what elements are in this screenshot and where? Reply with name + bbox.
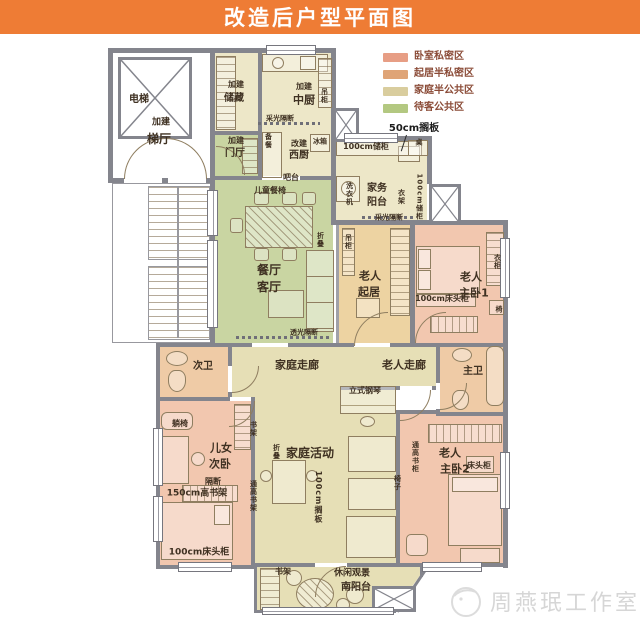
floor-plan-page: 改造后户型平面图 卧室私密区起居半私密区家庭半公共区待客公共区 bbox=[0, 0, 640, 630]
wall-segment bbox=[347, 563, 400, 567]
window-symbol bbox=[266, 45, 316, 55]
watermark-logo bbox=[446, 583, 486, 619]
legend-label: 家庭半公共区 bbox=[414, 86, 474, 96]
furniture-outline bbox=[262, 132, 282, 178]
furniture-outline bbox=[148, 266, 210, 340]
furniture-outline bbox=[272, 57, 284, 69]
furniture-outline bbox=[428, 424, 502, 443]
furniture-outline bbox=[260, 470, 272, 482]
wall-segment bbox=[288, 343, 354, 347]
toilet bbox=[168, 370, 186, 392]
legend-label: 卧室私密区 bbox=[414, 52, 464, 62]
furniture-outline bbox=[452, 477, 498, 492]
furniture-outline bbox=[408, 140, 428, 156]
legend-item: 起居半私密区 bbox=[383, 68, 474, 80]
furniture-outline bbox=[282, 192, 297, 205]
title-bar: 改造后户型平面图 bbox=[0, 0, 640, 34]
furniture-outline bbox=[418, 270, 431, 290]
furniture-outline bbox=[161, 436, 189, 484]
furniture-outline bbox=[489, 300, 504, 315]
duct-shaft bbox=[429, 184, 461, 224]
furniture-outline bbox=[254, 248, 269, 261]
furniture-outline bbox=[306, 470, 318, 482]
legend-label: 待客公共区 bbox=[414, 103, 464, 113]
wall-segment bbox=[210, 176, 262, 180]
legend-swatch bbox=[383, 104, 408, 113]
wall-segment bbox=[436, 412, 508, 416]
wall-segment bbox=[331, 220, 415, 225]
furniture-outline bbox=[460, 548, 500, 563]
upright-piano bbox=[340, 386, 396, 414]
window-symbol bbox=[500, 452, 510, 509]
window-symbol bbox=[153, 496, 163, 542]
wall-segment bbox=[396, 410, 400, 567]
window-symbol bbox=[178, 562, 232, 572]
wall-segment bbox=[251, 563, 315, 567]
furniture-outline bbox=[182, 485, 238, 502]
furniture-outline bbox=[452, 348, 472, 362]
fridge bbox=[310, 134, 330, 152]
furniture-outline bbox=[342, 228, 355, 276]
furniture-outline bbox=[260, 568, 280, 610]
wall-segment bbox=[300, 176, 333, 180]
furniture-outline bbox=[230, 218, 243, 233]
coffee-table bbox=[268, 290, 304, 318]
legend-label: 起居半私密区 bbox=[414, 69, 474, 79]
window-symbol bbox=[500, 238, 510, 298]
furniture-outline bbox=[191, 452, 205, 466]
furniture-outline bbox=[318, 58, 332, 108]
furniture-outline bbox=[348, 436, 396, 472]
partition-wall bbox=[336, 225, 339, 345]
watermark-text: 周燕珉工作室 bbox=[490, 585, 640, 617]
door-arc bbox=[166, 138, 207, 179]
window-symbol bbox=[207, 240, 218, 328]
sofa bbox=[306, 250, 334, 332]
activity-table bbox=[272, 460, 306, 504]
window-symbol bbox=[153, 428, 163, 486]
legend-item: 待客公共区 bbox=[383, 102, 474, 114]
child-dining-chair bbox=[302, 192, 316, 205]
legend-swatch bbox=[383, 70, 408, 79]
furniture-outline bbox=[166, 351, 188, 366]
wall-segment bbox=[108, 48, 113, 183]
furniture-outline bbox=[216, 56, 236, 130]
glass-partition bbox=[236, 336, 332, 339]
shape bbox=[459, 597, 462, 600]
page-title: 改造后户型平面图 bbox=[224, 2, 416, 32]
wall-segment bbox=[410, 220, 415, 345]
elevator-shaft bbox=[118, 57, 192, 139]
shape bbox=[432, 187, 458, 221]
furniture-outline bbox=[346, 516, 396, 558]
wall-segment bbox=[177, 186, 179, 338]
watermark: 周燕珉工作室 bbox=[446, 583, 640, 619]
furniture-outline bbox=[416, 294, 476, 307]
shape bbox=[121, 60, 189, 136]
window-symbol bbox=[344, 133, 398, 143]
furniture-outline bbox=[466, 456, 494, 473]
furniture-outline bbox=[148, 186, 210, 260]
door-arc bbox=[124, 138, 165, 179]
furniture-outline bbox=[254, 192, 269, 205]
furniture-outline bbox=[360, 416, 375, 427]
bathtub bbox=[486, 346, 504, 406]
plant bbox=[286, 570, 302, 586]
wall-segment bbox=[254, 567, 257, 613]
dining-table bbox=[245, 206, 313, 248]
wall-segment bbox=[210, 48, 215, 183]
furniture-outline bbox=[418, 249, 431, 269]
legend: 卧室私密区起居半私密区家庭半公共区待客公共区 bbox=[383, 51, 474, 114]
furniture-outline bbox=[300, 56, 316, 70]
wall-segment bbox=[108, 48, 215, 53]
shape bbox=[375, 589, 413, 609]
furniture-outline bbox=[406, 534, 428, 556]
wall-segment bbox=[158, 343, 252, 347]
glass-partition bbox=[258, 122, 320, 125]
legend-item: 家庭半公共区 bbox=[383, 85, 474, 97]
glass-partition bbox=[362, 216, 414, 219]
lounge-chair bbox=[161, 412, 193, 430]
window-symbol bbox=[262, 607, 394, 615]
wall-segment bbox=[251, 397, 255, 569]
furniture-outline bbox=[282, 248, 297, 261]
furniture-outline bbox=[390, 228, 410, 316]
window-symbol bbox=[422, 562, 482, 572]
furniture-outline bbox=[348, 478, 396, 510]
room-elder-corridor bbox=[340, 347, 438, 390]
wall-segment bbox=[156, 343, 160, 401]
legend-swatch bbox=[383, 53, 408, 62]
window-symbol bbox=[207, 190, 218, 236]
furniture-outline bbox=[214, 505, 230, 525]
legend-swatch bbox=[383, 87, 408, 96]
furniture-outline bbox=[341, 181, 356, 196]
wall-segment bbox=[213, 131, 260, 135]
legend-item: 卧室私密区 bbox=[383, 51, 474, 63]
